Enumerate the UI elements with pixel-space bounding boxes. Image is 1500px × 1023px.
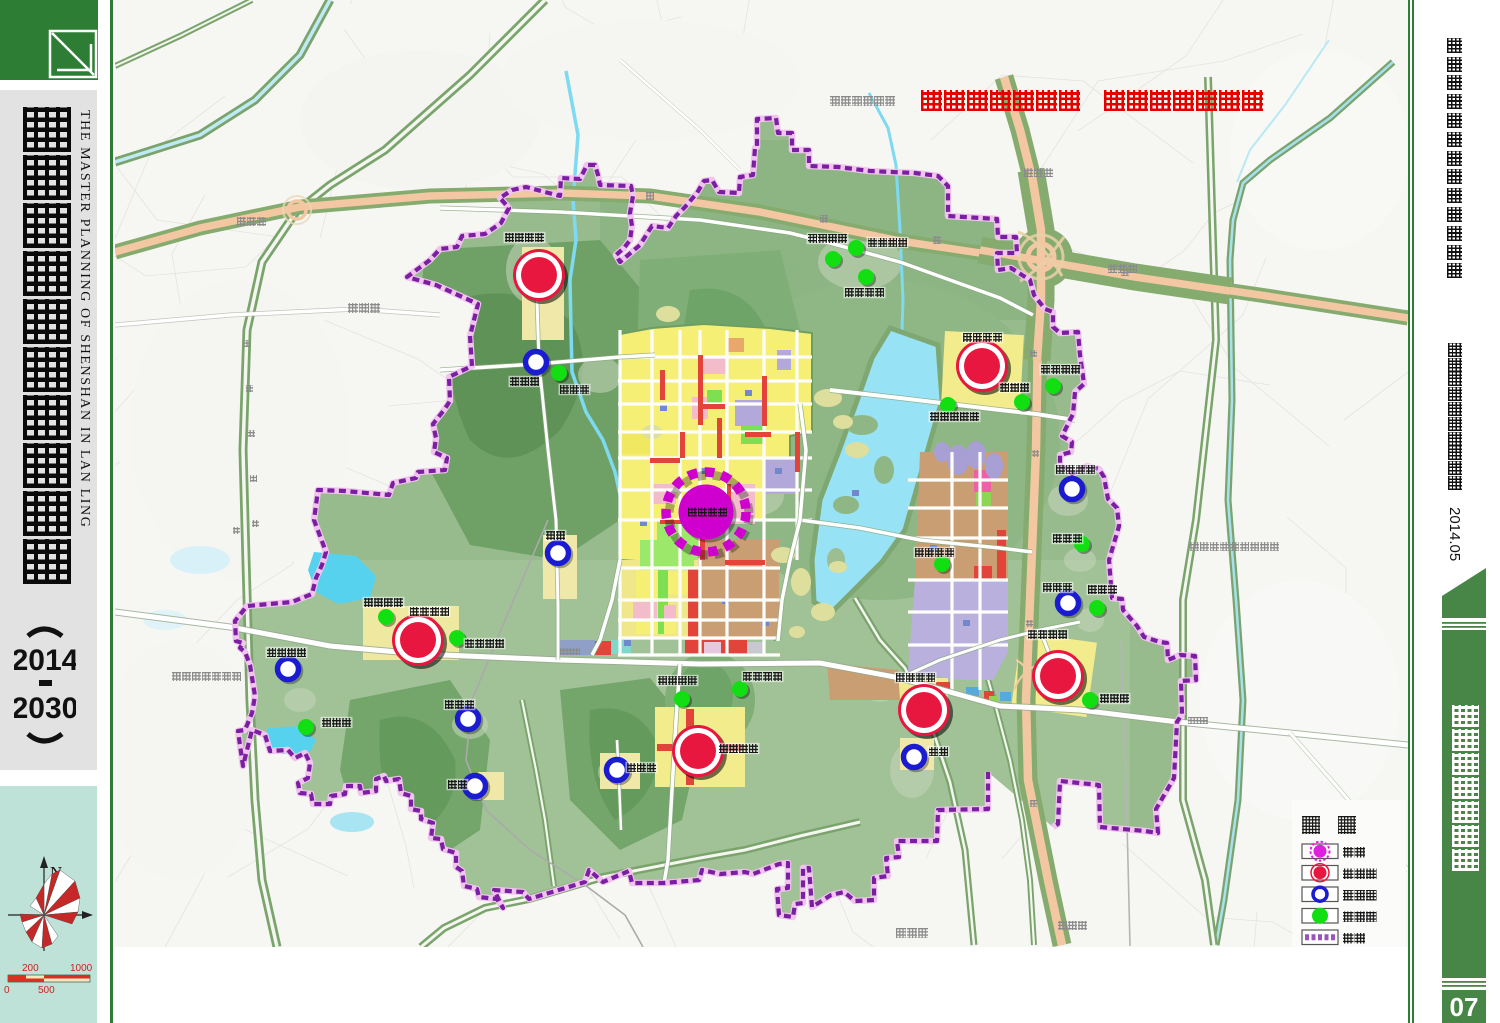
svg-text:2030: 2030 [14,692,76,725]
svg-text:500: 500 [38,985,55,996]
svg-text:0: 0 [4,985,10,996]
svg-text:1000: 1000 [70,963,93,974]
svg-text:200: 200 [22,963,39,974]
svg-text:07: 07 [1450,992,1479,1022]
svg-text:2014: 2014 [14,644,76,677]
